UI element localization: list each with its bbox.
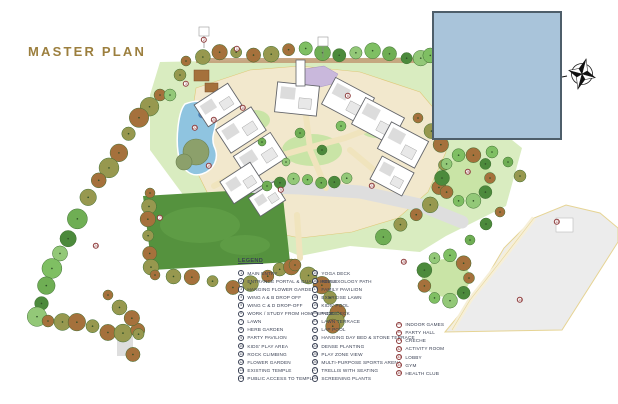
legend-item-label: FAMILY PAVILION <box>321 287 362 292</box>
legend-item-29: 29INDOOR GAMES <box>396 322 444 328</box>
legend-item-label: WING A & B DROP OFF <box>247 295 301 300</box>
legend-item-14: 14PUBLIC ACCESS TO TEMPLE <box>238 375 316 381</box>
legend-item-label: LOBBY <box>405 355 421 360</box>
legend-item-32: 32ACTIVITY ROOM <box>396 346 444 352</box>
legend-item-34: 34GYM <box>396 362 417 368</box>
legend-item-24: 24DENSE PLANTING <box>312 343 364 349</box>
legend-item-label: KIDS' PLAY AREA <box>247 344 288 349</box>
legend-item-number: 4 <box>238 294 244 300</box>
legend-item-label: ACTIVITY ROOM <box>405 346 444 351</box>
legend-item-17: 17FAMILY PAVILION <box>312 286 362 292</box>
legend-item-number: 22 <box>312 327 318 333</box>
legend-item-33: 33LOBBY <box>396 354 422 360</box>
legend-item-number: 27 <box>312 367 318 373</box>
legend-item-number: 13 <box>238 367 244 373</box>
masked-region-overlay <box>432 11 562 140</box>
legend-item-number: 18 <box>312 294 318 300</box>
legend-item-number: 5 <box>238 302 244 308</box>
legend-item-10: 10KIDS' PLAY AREA <box>238 343 288 349</box>
legend-item-label: HERB GARDEN <box>247 327 283 332</box>
legend-panel: LEGEND 1MAIN ENTRY2ENTRANCE PORTAL & GUA… <box>236 258 486 398</box>
legend-item-number: 12 <box>238 359 244 365</box>
legend-item-31: 31CRECHE <box>396 338 426 344</box>
legend-item-label: MULTI-PURPOSE SPORTS ARENA <box>321 360 401 365</box>
master-plan-page: MASTER PLAN 21310222019697242326281314 L… <box>0 0 618 404</box>
legend-item-number: 34 <box>396 362 402 368</box>
legend-item-label: REFLEXOLOGY PATH <box>321 279 371 284</box>
legend-item-16: 16REFLEXOLOGY PATH <box>312 278 372 284</box>
legend-item-label: INDOOR GAMES <box>405 322 444 327</box>
legend-item-label: GYM <box>405 363 416 368</box>
legend-item-27: 27TRELLIS WITH SEATING <box>312 367 378 373</box>
legend-item-4: 4WING A & B DROP OFF <box>238 294 301 300</box>
legend-item-label: MAIN ENTRY <box>247 271 277 276</box>
legend-item-28: 28SCREENING PLANTS <box>312 375 371 381</box>
legend-item-3: 3HANGING FLOWER GARDEN <box>238 286 315 292</box>
legend-item-21: 21LAWN TERRACE <box>312 319 360 325</box>
legend-item-number: 28 <box>312 375 318 381</box>
legend-item-5: 5WING C & D DROP-OFF <box>238 302 303 308</box>
legend-item-13: 13EXISTING TEMPLE <box>238 367 292 373</box>
legend-item-label: EXERCISE LAWN <box>321 295 361 300</box>
legend-item-label: YOGA DECK <box>321 271 350 276</box>
legend-item-label: PLAY ZONE VIEW <box>321 352 362 357</box>
legend-item-19: 19KIDS' POOL <box>312 302 349 308</box>
legend-item-label: ROCK CLIMBING <box>247 352 286 357</box>
legend-item-26: 26MULTI-PURPOSE SPORTS ARENA <box>312 359 401 365</box>
legend-item-label: DENSE PLANTING <box>321 344 364 349</box>
legend-item-22: 22LAP POOL <box>312 327 346 333</box>
legend-item-number: 9 <box>238 335 244 341</box>
legend-item-1: 1MAIN ENTRY <box>238 270 278 276</box>
legend-item-30: 30PARTY HALL <box>396 330 435 336</box>
legend-item-label: HANGING FLOWER GARDEN <box>247 287 315 292</box>
legend-item-11: 11ROCK CLIMBING <box>238 351 287 357</box>
legend-item-label: SCREENING PLANTS <box>321 376 371 381</box>
legend-item-9: 9PARTY PAVILION <box>238 335 287 341</box>
legend-item-number: 1 <box>238 270 244 276</box>
legend-item-number: 6 <box>238 311 244 317</box>
legend-item-label: KIDS' POOL <box>321 303 349 308</box>
legend-item-number: 33 <box>396 354 402 360</box>
legend-item-label: LAP POOL <box>321 327 345 332</box>
legend-item-number: 3 <box>238 286 244 292</box>
legend-item-number: 8 <box>238 327 244 333</box>
legend-item-8: 8HERB GARDEN <box>238 327 283 333</box>
legend-item-number: 17 <box>312 286 318 292</box>
legend-item-label: PARTY HALL <box>405 330 435 335</box>
legend-item-35: 35HEALTH CLUB <box>396 370 439 376</box>
legend-item-number: 23 <box>312 335 318 341</box>
legend-item-number: 14 <box>238 375 244 381</box>
legend-item-label: CRECHE <box>405 338 426 343</box>
legend-item-number: 32 <box>396 346 402 352</box>
legend-item-number: 29 <box>396 322 402 328</box>
legend-item-number: 30 <box>396 330 402 336</box>
legend-item-label: PUBLIC ACCESS TO TEMPLE <box>247 376 315 381</box>
legend-item-7: 7LAWN <box>238 319 261 325</box>
legend-item-12: 12FLOWER GARDEN <box>238 359 291 365</box>
legend-item-label: LAWN <box>247 319 261 324</box>
legend-item-label: LAWN TERRACE <box>321 319 360 324</box>
legend-item-label: TRELLIS WITH SEATING <box>321 368 378 373</box>
legend-item-number: 26 <box>312 359 318 365</box>
legend-item-label: EXISTING TEMPLE <box>247 368 291 373</box>
legend-item-number: 10 <box>238 343 244 349</box>
legend-item-20: 20POOL DECK <box>312 311 350 317</box>
legend-item-25: 25PLAY ZONE VIEW <box>312 351 363 357</box>
legend-item-label: HEALTH CLUB <box>405 371 439 376</box>
legend-item-number: 2 <box>238 278 244 284</box>
legend-item-number: 15 <box>312 270 318 276</box>
compass-north-icon <box>564 54 600 94</box>
legend-heading: LEGEND <box>238 258 263 264</box>
legend-item-number: 24 <box>312 343 318 349</box>
legend-item-number: 20 <box>312 311 318 317</box>
legend-item-number: 16 <box>312 278 318 284</box>
legend-item-15: 15YOGA DECK <box>312 270 350 276</box>
legend-item-number: 35 <box>396 370 402 376</box>
legend-item-label: WING C & D DROP-OFF <box>247 303 302 308</box>
legend-item-number: 21 <box>312 319 318 325</box>
legend-item-18: 18EXERCISE LAWN <box>312 294 362 300</box>
legend-item-label: POOL DECK <box>321 311 350 316</box>
legend-item-number: 11 <box>238 351 244 357</box>
legend-item-number: 7 <box>238 319 244 325</box>
legend-item-label: FLOWER GARDEN <box>247 360 290 365</box>
legend-item-number: 31 <box>396 338 402 344</box>
legend-item-label: PARTY PAVILION <box>247 335 286 340</box>
legend-item-number: 25 <box>312 351 318 357</box>
legend-item-number: 19 <box>312 302 318 308</box>
